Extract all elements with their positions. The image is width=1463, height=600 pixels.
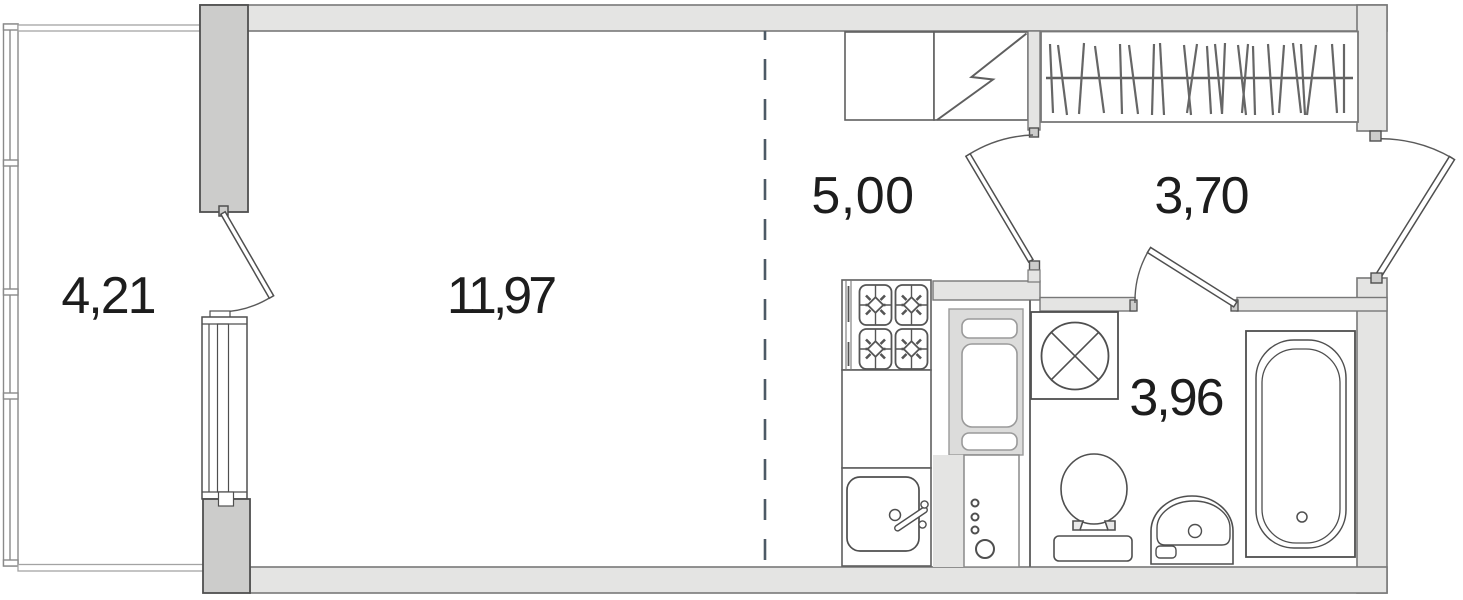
svg-text:11,97: 11,97 bbox=[447, 267, 555, 325]
svg-text:4,21: 4,21 bbox=[61, 267, 154, 325]
svg-text:3,70: 3,70 bbox=[1154, 167, 1247, 225]
svg-text:3,96: 3,96 bbox=[1129, 369, 1222, 427]
svg-text:5,00: 5,00 bbox=[811, 167, 914, 225]
